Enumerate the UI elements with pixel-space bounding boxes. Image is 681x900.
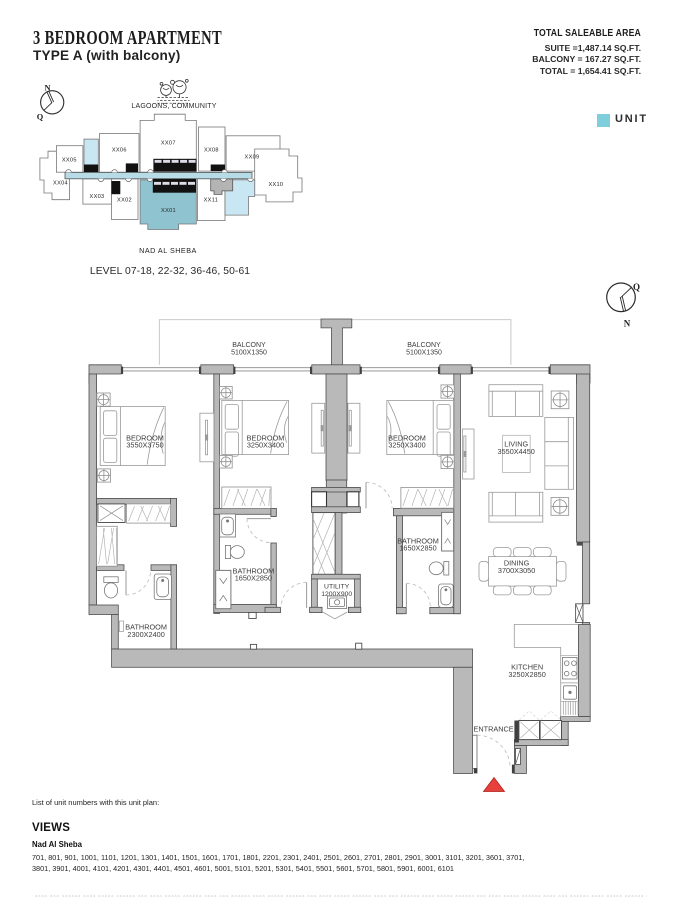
- svg-text:XX05: XX05: [62, 158, 77, 164]
- svg-text:3700X3050: 3700X3050: [498, 566, 535, 575]
- svg-text:1650X2850: 1650X2850: [399, 544, 436, 553]
- svg-text:2300X2400: 2300X2400: [127, 630, 164, 639]
- svg-text:3550X4450: 3550X4450: [498, 447, 535, 456]
- svg-text:N: N: [624, 319, 631, 329]
- svg-text:UTILITY: UTILITY: [324, 584, 350, 591]
- svg-text:XX02: XX02: [117, 198, 132, 204]
- svg-text:3250X3400: 3250X3400: [247, 441, 284, 450]
- svg-text:XX04: XX04: [53, 181, 68, 187]
- svg-text:3250X2850: 3250X2850: [508, 670, 545, 679]
- svg-text:XX11: XX11: [204, 198, 218, 204]
- svg-text:BALCONY: BALCONY: [232, 342, 266, 349]
- svg-text:XX09: XX09: [245, 155, 260, 161]
- svg-text:Q: Q: [37, 113, 44, 122]
- svg-text:ENTRANCE: ENTRANCE: [474, 724, 514, 733]
- svg-text:XX01: XX01: [161, 208, 176, 214]
- svg-text:5100X1350: 5100X1350: [406, 349, 442, 356]
- svg-text:XX10: XX10: [268, 182, 283, 188]
- svg-text:3550X3750: 3550X3750: [126, 441, 163, 450]
- svg-text:XX07: XX07: [161, 141, 176, 147]
- svg-text:BALCONY: BALCONY: [407, 342, 441, 349]
- svg-text:XX06: XX06: [112, 148, 127, 154]
- svg-text:5100X1350: 5100X1350: [231, 349, 267, 356]
- svg-text:XX03: XX03: [90, 194, 105, 200]
- svg-text:1200X900: 1200X900: [321, 591, 352, 598]
- svg-text:3250X3400: 3250X3400: [388, 441, 425, 450]
- svg-text:XX08: XX08: [204, 148, 219, 154]
- svg-text:Q: Q: [633, 282, 640, 292]
- svg-text:N: N: [44, 83, 50, 92]
- svg-text:1650X2850: 1650X2850: [235, 574, 272, 583]
